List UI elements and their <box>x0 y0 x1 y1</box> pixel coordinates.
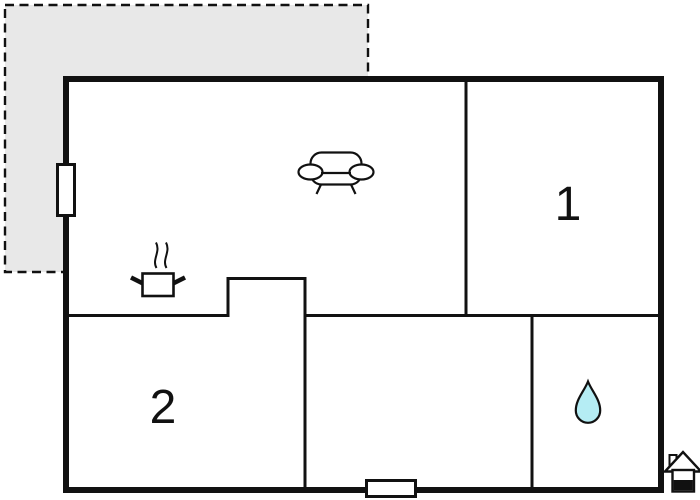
room-2-label: 2 <box>150 381 177 434</box>
floor-plan-image: 1 2 <box>0 0 700 500</box>
house-icon <box>665 452 700 492</box>
floor-plan-svg: 1 2 <box>0 0 700 500</box>
sofa-armrest-right <box>350 165 374 180</box>
room-1-label: 1 <box>555 178 582 231</box>
pot-body <box>143 274 174 297</box>
house-body-fill <box>674 480 693 490</box>
sofa-armrest-left <box>299 165 323 180</box>
window-marker <box>58 165 75 216</box>
plan-drawing: 1 2 <box>5 5 700 497</box>
door-marker <box>367 481 416 497</box>
